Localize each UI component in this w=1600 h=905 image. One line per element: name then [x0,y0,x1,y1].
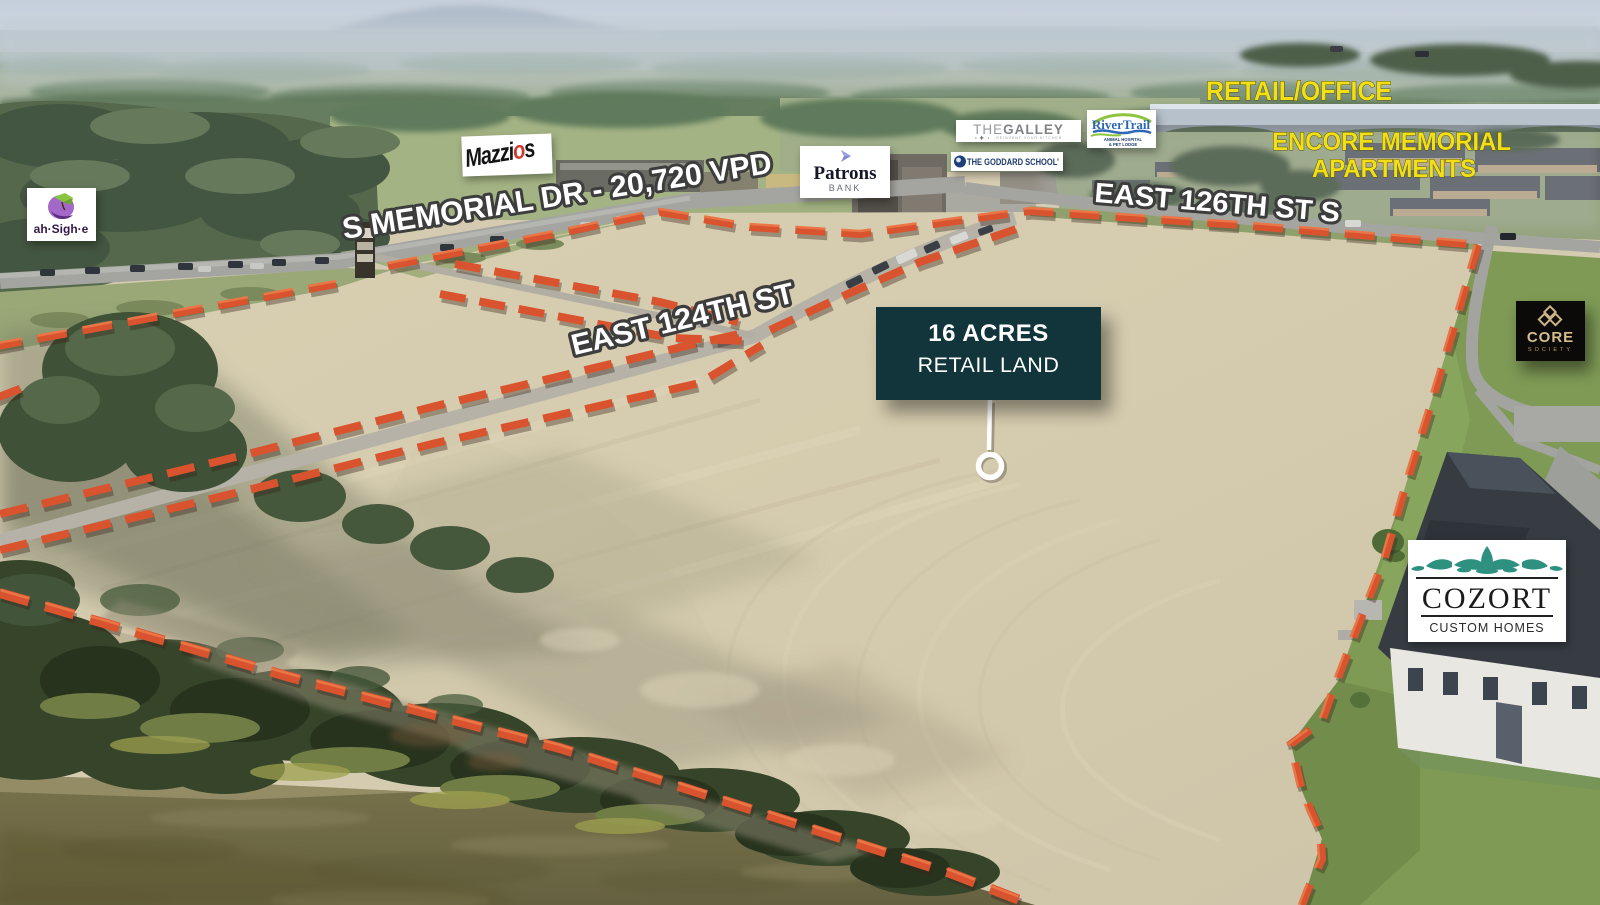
svg-text:CORE: CORE [1527,329,1574,346]
svg-text:CUSTOM HOMES: CUSTOM HOMES [1429,621,1544,635]
svg-text:SOCIETY: SOCIETY [1528,347,1573,353]
svg-text:APARTMENTS: APARTMENTS [1312,155,1476,183]
svg-text:BANK: BANK [829,183,862,193]
svg-text:THE GODDARD SCHOOL’: THE GODDARD SCHOOL’ [967,157,1059,168]
svg-text:Patrons: Patrons [814,163,877,184]
svg-text:& PET LODGE: & PET LODGE [1109,142,1138,147]
svg-text:COZORT: COZORT [1422,582,1552,615]
svg-text:RETAIL/OFFICE: RETAIL/OFFICE [1206,76,1392,106]
svg-text:ah·Sigh·e: ah·Sigh·e [34,222,89,236]
svg-text:ENCORE MEMORIAL: ENCORE MEMORIAL [1272,128,1511,156]
